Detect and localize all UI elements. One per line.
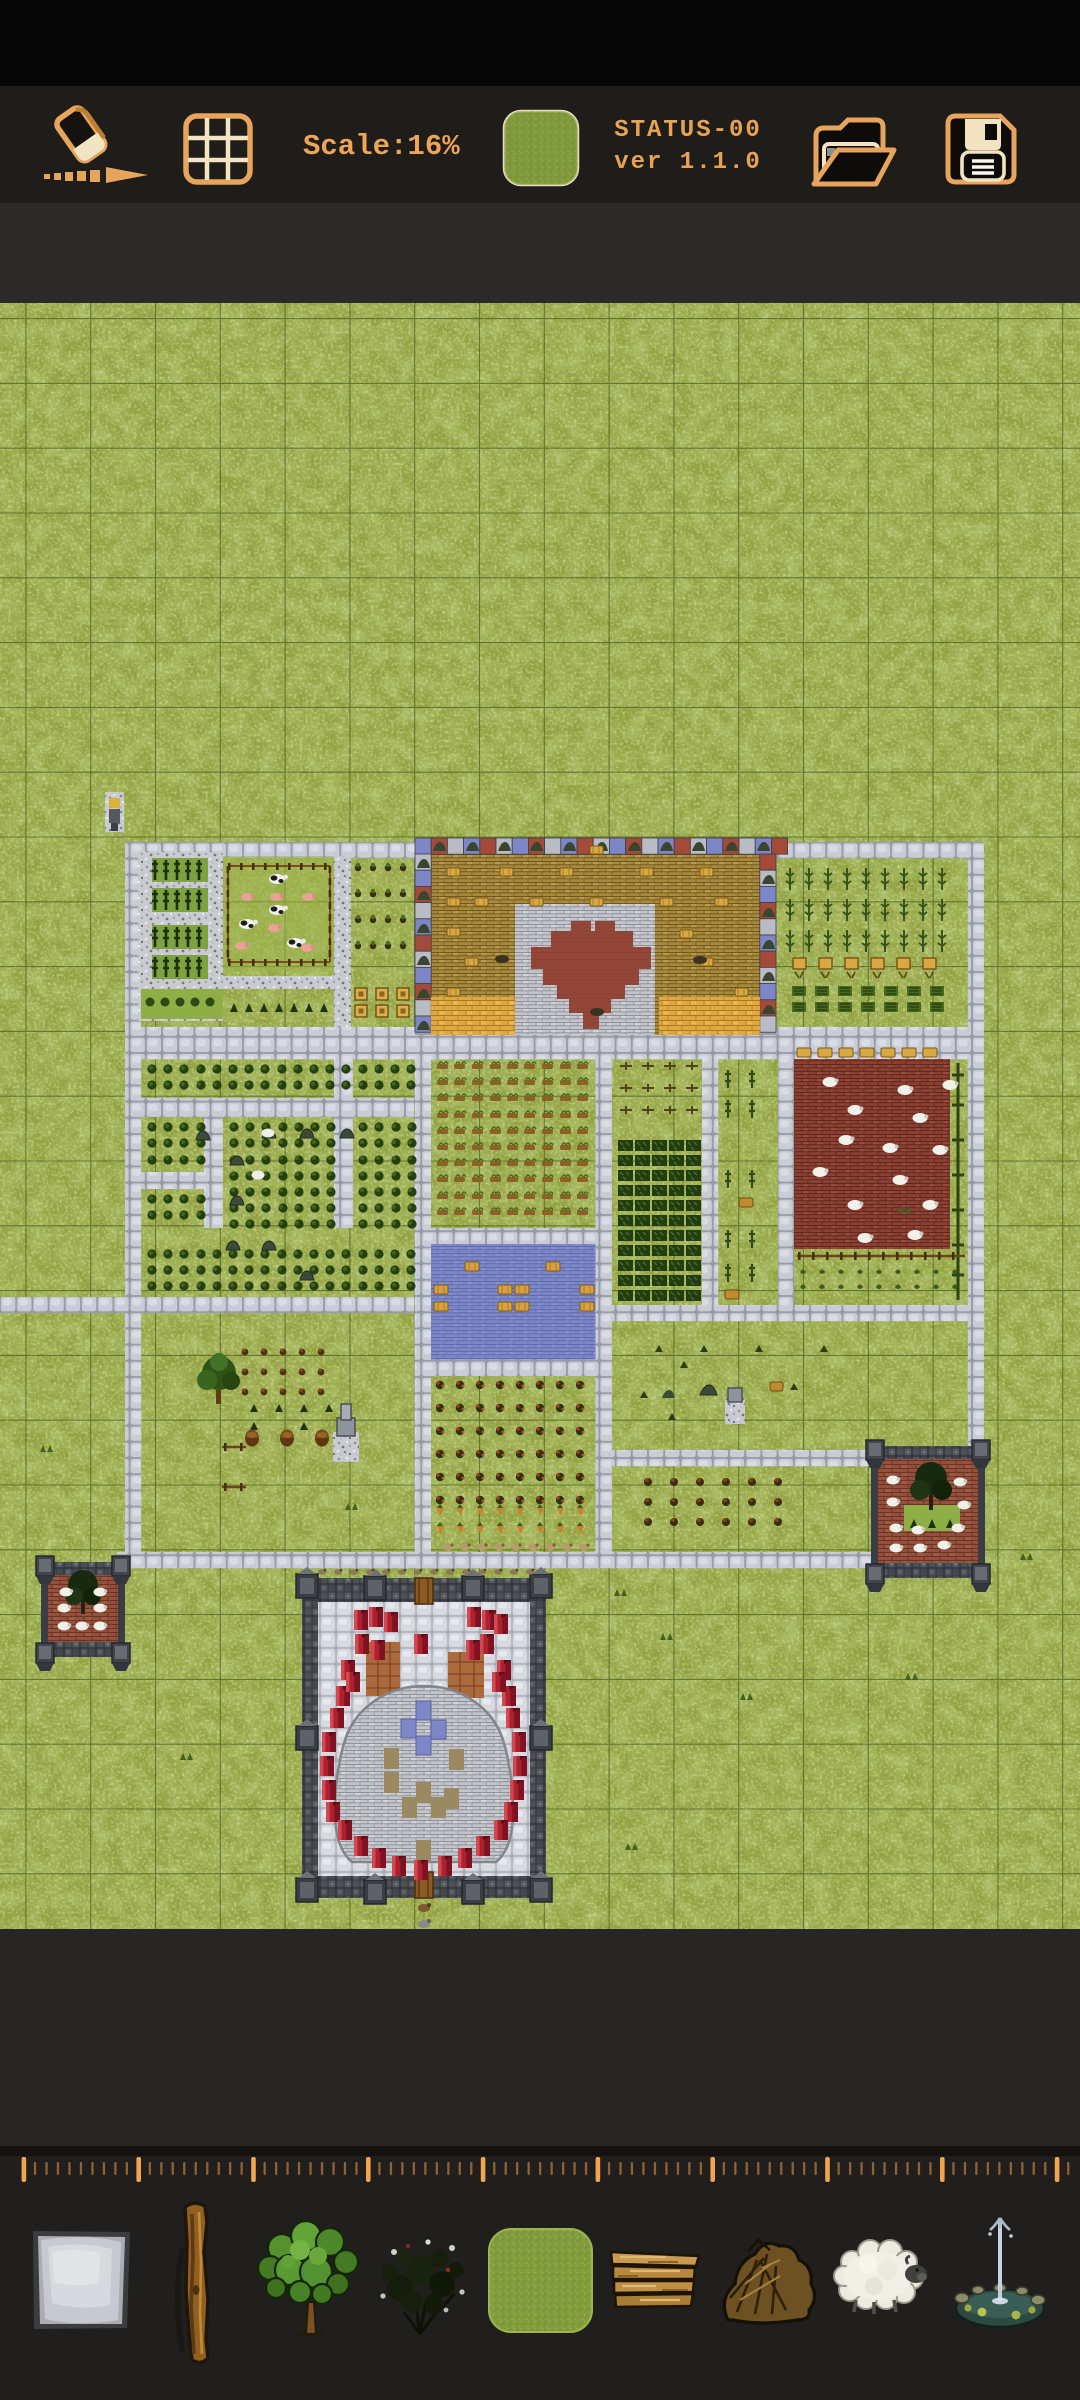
svg-text:STATUS-00: STATUS-00 [614,117,762,144]
svg-text:ver 1.1.0: ver 1.1.0 [614,149,762,176]
svg-text:Scale:16%: Scale:16% [303,130,460,163]
